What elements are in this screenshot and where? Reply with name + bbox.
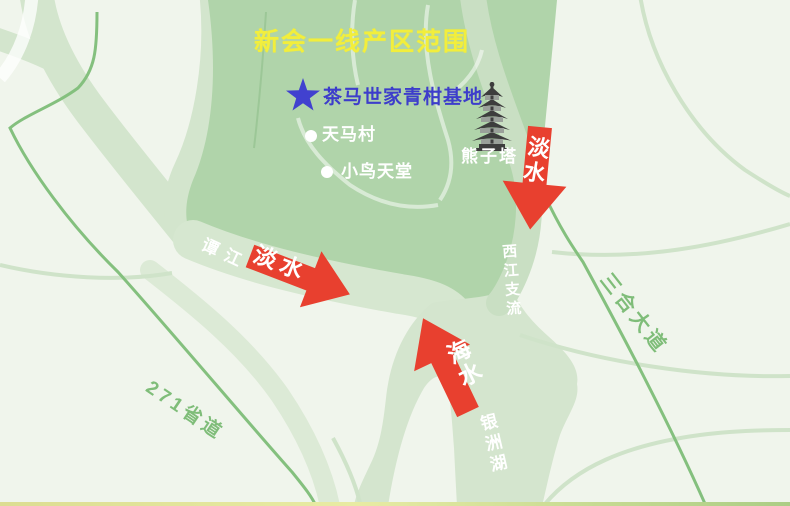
map-canvas: 新会一线产区范围 茶马世家青柑基地 天马村 小鸟天堂 熊子塔 谭江 西江支流 银… — [0, 0, 790, 506]
village-dot-icon — [305, 130, 317, 142]
village-dot-icon — [321, 166, 333, 178]
label-pagoda: 熊子塔 — [461, 148, 518, 166]
map-title: 新会一线产区范围 — [254, 29, 470, 55]
base-label: 茶马世家青柑基地 — [323, 88, 483, 108]
map-svg — [0, 0, 790, 506]
label-tianma-village: 天马村 — [322, 126, 376, 144]
bottom-border-strip — [0, 502, 790, 506]
label-bird-paradise: 小鸟天堂 — [341, 163, 413, 181]
